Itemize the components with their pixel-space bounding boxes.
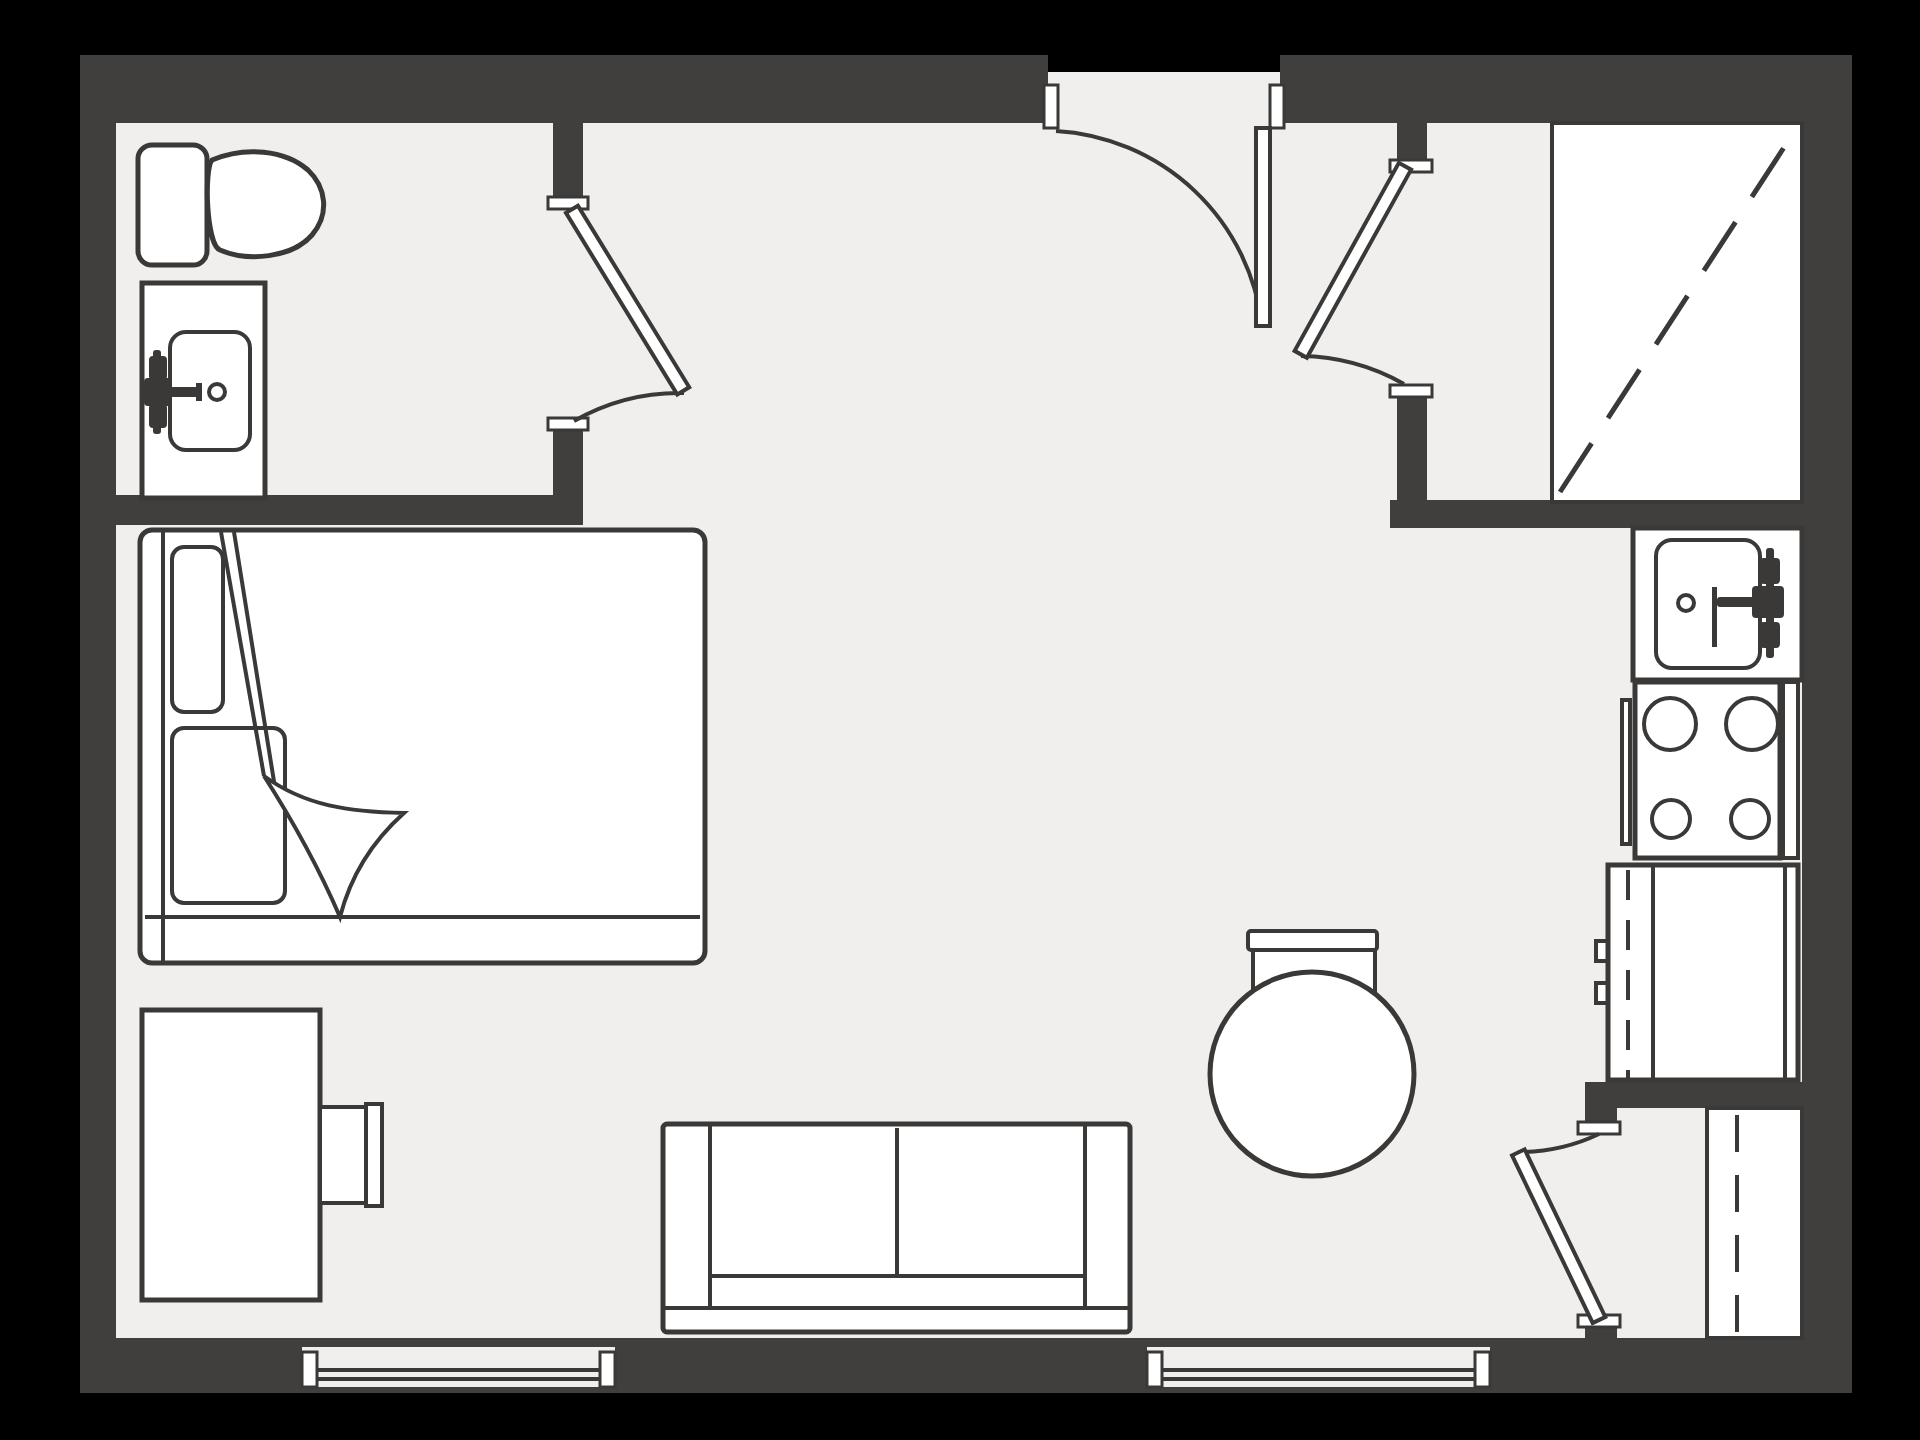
burner-top-right [1726, 698, 1778, 750]
sofa [663, 1124, 1130, 1332]
fridge-body [1608, 865, 1798, 1080]
dining-chair-back [1248, 931, 1377, 950]
dining-table [1210, 972, 1414, 1176]
wall-bathroom-right-upper-stub [553, 123, 583, 199]
entry-door-jamb-left [1044, 85, 1058, 128]
entry-threshold [1048, 72, 1280, 123]
window-right [1147, 1347, 1490, 1387]
wall-right [1802, 55, 1852, 1393]
wall-kitchen-top [1390, 500, 1802, 528]
window-right-glass-line-2 [1162, 1377, 1475, 1381]
window-left-jamb-b [600, 1352, 615, 1387]
pillow-top [172, 547, 223, 712]
window-right-jamb-a [1147, 1352, 1162, 1387]
floorplan-drawing [0, 0, 1920, 1440]
window-left-glass-line-2 [317, 1377, 600, 1381]
kitchen-faucet-knob-top [1760, 558, 1780, 584]
bed [140, 530, 705, 963]
bathroom-sink-drain [209, 384, 225, 400]
bathroom-door-jamb-bottom [548, 418, 588, 430]
kitchen-faucet-tip-bar [1712, 587, 1717, 647]
wall-top-right-of-entry [1280, 55, 1852, 123]
toilet [138, 145, 324, 265]
bathroom-faucet-tip-bar [196, 383, 202, 401]
desk [142, 1010, 320, 1300]
entry-door-jamb-right [1270, 85, 1284, 128]
kitchen-faucet-knob-bottom [1760, 622, 1780, 648]
kitchen-sink-counter [1633, 528, 1802, 680]
burner-bottom-left [1652, 800, 1690, 838]
burner-bottom-right [1731, 800, 1769, 838]
toilet-tank [138, 145, 207, 265]
window-right-glass-line-1 [1162, 1368, 1475, 1372]
toilet-bowl [207, 152, 323, 257]
window-left-jamb-a [302, 1352, 317, 1387]
wall-showerroom-left-upper-stub [1397, 123, 1427, 162]
window-left [302, 1347, 615, 1387]
closet [1707, 1108, 1802, 1338]
stove-side-strip [1783, 682, 1798, 858]
oven-handle [1622, 700, 1630, 844]
window-right-jamb-b [1475, 1352, 1490, 1387]
kitchen-faucet-spout [1717, 597, 1757, 607]
closet-interior [1707, 1108, 1802, 1338]
floorplan-page [0, 0, 1920, 1440]
refrigerator [1596, 865, 1798, 1080]
window-left-glass-line-1 [317, 1368, 600, 1372]
bathroom-sink [142, 283, 265, 498]
desk-chair-seat [320, 1107, 366, 1203]
wall-closet-top [1585, 1082, 1802, 1108]
bathroom-faucet-knob-top [149, 356, 167, 380]
wall-left [80, 55, 116, 1393]
shower [1552, 123, 1802, 502]
bathroom-faucet-knob-bottom [149, 404, 167, 428]
wall-bathroom-right-lower-stub [553, 428, 583, 498]
closet-door-jamb-top [1578, 1122, 1620, 1134]
bathroom-door-jamb-top [548, 197, 588, 209]
wall-top-left-of-entry [80, 55, 1048, 123]
kitchen-sink-drain [1678, 595, 1694, 611]
shower-room-door-jamb-bottom [1390, 385, 1432, 397]
entry-door-panel [1256, 128, 1270, 326]
desk-chair-back [366, 1104, 382, 1206]
stove [1622, 682, 1798, 858]
burner-top-left [1644, 698, 1696, 750]
bathroom-faucet-body [144, 378, 172, 406]
